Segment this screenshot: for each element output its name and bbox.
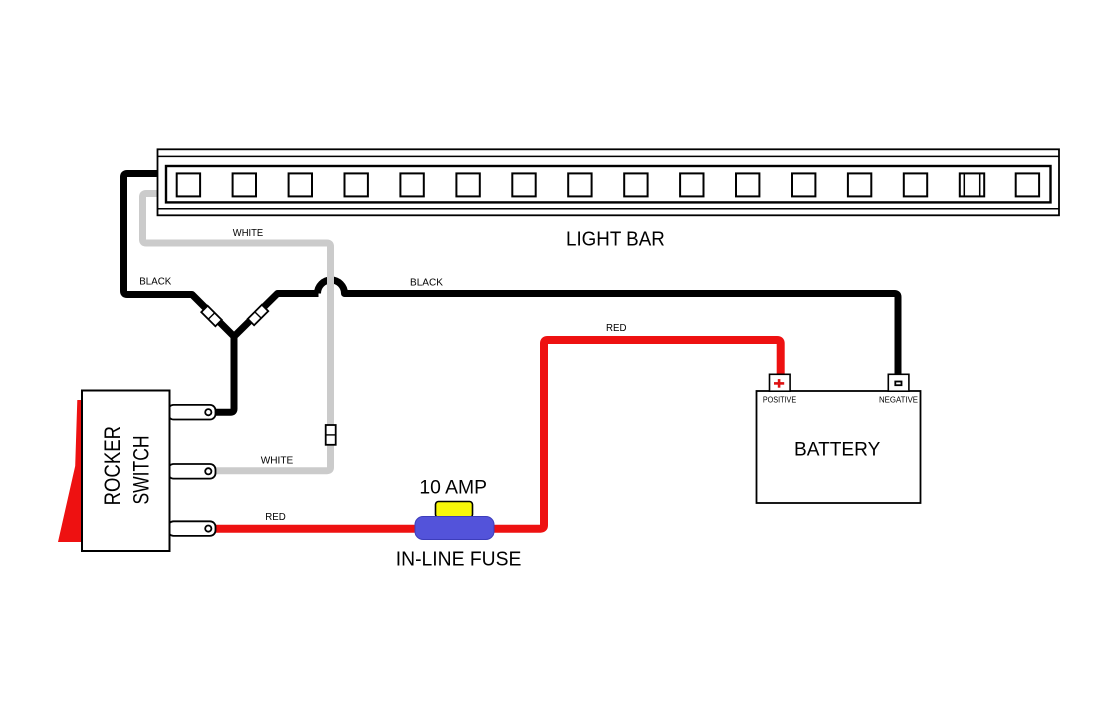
svg-text:WHITE: WHITE	[261, 455, 294, 466]
svg-text:BATTERY: BATTERY	[794, 438, 880, 460]
svg-text:POSITIVE: POSITIVE	[763, 396, 796, 405]
svg-text:LIGHT BAR: LIGHT BAR	[566, 228, 665, 250]
svg-text:BLACK: BLACK	[410, 277, 443, 288]
svg-text:10 AMP: 10 AMP	[419, 478, 487, 499]
svg-text:SWITCH: SWITCH	[129, 435, 154, 504]
svg-text:BLACK: BLACK	[139, 277, 171, 288]
svg-text:IN-LINE FUSE: IN-LINE FUSE	[396, 549, 522, 571]
svg-text:RED: RED	[606, 323, 627, 334]
svg-text:NEGATIVE: NEGATIVE	[879, 396, 918, 405]
svg-text:WHITE: WHITE	[233, 228, 264, 239]
svg-text:ROCKER: ROCKER	[100, 426, 125, 505]
svg-text:RED: RED	[265, 512, 286, 523]
